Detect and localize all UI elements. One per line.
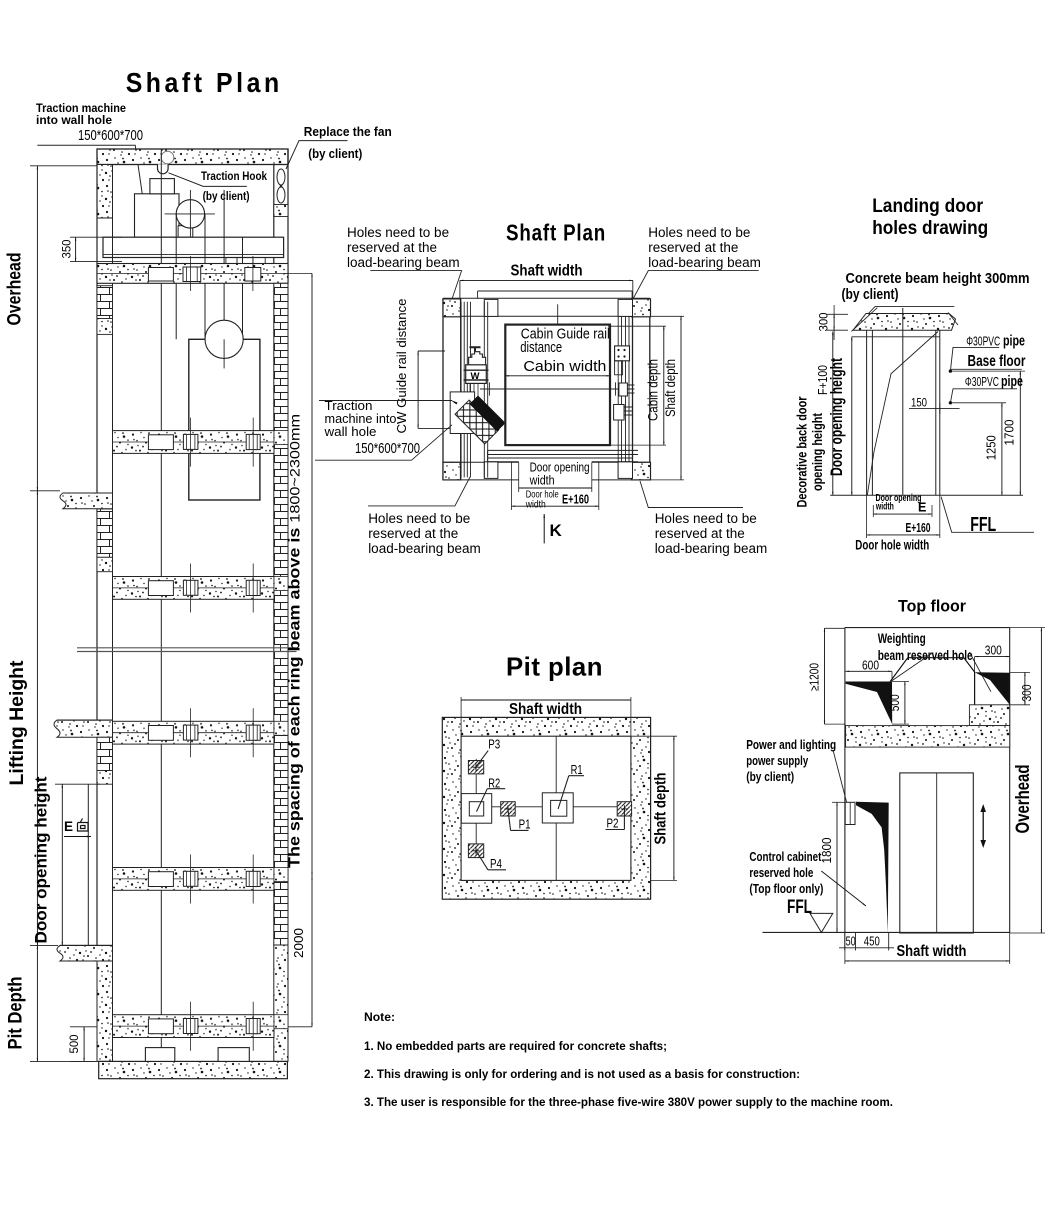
svg-text:500: 500 bbox=[888, 694, 902, 711]
svg-text:Holes need to be: Holes need to be bbox=[655, 511, 757, 526]
svg-text:Lifting Height: Lifting Height bbox=[7, 660, 28, 786]
svg-text:reserved hole: reserved hole bbox=[749, 865, 813, 880]
svg-text:Pit Depth: Pit Depth bbox=[6, 977, 27, 1050]
svg-text:Note:: Note: bbox=[364, 1010, 395, 1024]
svg-text:Base floor: Base floor bbox=[968, 353, 1026, 370]
svg-text:Φ30PVC: Φ30PVC bbox=[966, 334, 1000, 349]
svg-text:P1: P1 bbox=[519, 817, 531, 832]
svg-text:Holes need to be: Holes need to be bbox=[648, 225, 750, 240]
svg-text:The spacing of each ring beam: The spacing of each ring beam above is 1… bbox=[287, 414, 304, 868]
svg-text:1700: 1700 bbox=[1003, 419, 1017, 445]
svg-text:3. The user is responsible for: 3. The user is responsible for the three… bbox=[364, 1095, 893, 1109]
svg-text:500: 500 bbox=[67, 1034, 81, 1053]
svg-text:Shaft width: Shaft width bbox=[509, 701, 582, 718]
svg-text:Cabin width: Cabin width bbox=[523, 358, 606, 375]
svg-text:1800: 1800 bbox=[820, 837, 834, 863]
svg-text:pipe: pipe bbox=[1003, 334, 1025, 350]
svg-text:width: width bbox=[525, 499, 546, 511]
svg-text:(Top floor only): (Top floor only) bbox=[749, 881, 823, 896]
svg-text:Shaft Plan: Shaft Plan bbox=[506, 220, 606, 246]
svg-text:(by client): (by client) bbox=[308, 146, 362, 161]
svg-text:300: 300 bbox=[1020, 684, 1034, 701]
svg-text:K: K bbox=[550, 521, 563, 540]
svg-text:(by client): (by client) bbox=[842, 287, 899, 303]
svg-text:Shaft Plan: Shaft Plan bbox=[126, 67, 283, 98]
svg-text:reserved at the: reserved at the bbox=[347, 240, 437, 255]
svg-text:Door opening: Door opening bbox=[530, 461, 590, 475]
svg-text:Weighting: Weighting bbox=[878, 630, 926, 646]
svg-text:Landing door: Landing door bbox=[872, 195, 983, 217]
svg-text:wall hole: wall hole bbox=[323, 424, 376, 439]
svg-text:opening height: opening height bbox=[810, 413, 825, 491]
svg-text:50: 50 bbox=[846, 934, 856, 948]
svg-text:1. No embedded parts are requi: 1. No embedded parts are required for co… bbox=[364, 1039, 667, 1053]
svg-text:(by client): (by client) bbox=[203, 191, 250, 203]
svg-text:Shaft depth: Shaft depth bbox=[663, 359, 678, 417]
svg-text:reserved at the: reserved at the bbox=[368, 526, 458, 541]
svg-text:W: W bbox=[471, 371, 480, 382]
svg-text:distance: distance bbox=[520, 340, 562, 356]
svg-text:reserved at the: reserved at the bbox=[648, 240, 738, 255]
svg-text:E: E bbox=[64, 819, 73, 834]
svg-text:300: 300 bbox=[817, 312, 831, 331]
svg-text:(by client): (by client) bbox=[746, 769, 794, 784]
svg-text:600: 600 bbox=[862, 659, 879, 673]
svg-text:Decorative back door: Decorative back door bbox=[795, 396, 810, 508]
svg-text:150: 150 bbox=[911, 396, 927, 410]
svg-text:Shaft depth: Shaft depth bbox=[653, 773, 670, 845]
svg-text:Φ30PVC: Φ30PVC bbox=[965, 374, 999, 389]
svg-text:2000: 2000 bbox=[291, 928, 306, 958]
svg-text:Holes need to be: Holes need to be bbox=[368, 511, 470, 526]
svg-text:Shaft width: Shaft width bbox=[897, 943, 967, 960]
svg-text:R1: R1 bbox=[571, 762, 583, 777]
svg-text:holes drawing: holes drawing bbox=[872, 217, 988, 239]
svg-text:150*600*700: 150*600*700 bbox=[355, 440, 420, 457]
svg-text:load-bearing beam: load-bearing beam bbox=[368, 541, 481, 556]
svg-text:Overhead: Overhead bbox=[5, 253, 26, 326]
svg-text:Cabin depth: Cabin depth bbox=[646, 359, 661, 421]
svg-text:FFL: FFL bbox=[787, 897, 812, 918]
svg-text:300: 300 bbox=[985, 644, 1002, 658]
svg-text:power supply: power supply bbox=[746, 753, 809, 768]
svg-text:load-bearing beam: load-bearing beam bbox=[655, 541, 768, 556]
svg-text:Holes need to be: Holes need to be bbox=[347, 225, 449, 240]
svg-text:width: width bbox=[875, 501, 894, 513]
svg-text:E: E bbox=[918, 501, 926, 515]
svg-text:Door opening height: Door opening height bbox=[827, 358, 846, 476]
svg-text:450: 450 bbox=[864, 934, 880, 948]
svg-text:≥1200: ≥1200 bbox=[808, 663, 822, 691]
svg-text:Replace the fan: Replace the fan bbox=[304, 124, 392, 139]
svg-text:Power and lighting: Power and lighting bbox=[746, 737, 836, 752]
svg-text:P3: P3 bbox=[488, 737, 500, 752]
svg-text:load-bearing beam: load-bearing beam bbox=[347, 255, 460, 270]
svg-text:2. This drawing is only for or: 2. This drawing is only for ordering and… bbox=[364, 1067, 800, 1081]
svg-text:1250: 1250 bbox=[985, 435, 999, 460]
svg-text:Top floor: Top floor bbox=[898, 597, 966, 616]
svg-text:Traction Hook: Traction Hook bbox=[201, 171, 268, 183]
svg-text:Overhead: Overhead bbox=[1013, 765, 1034, 834]
svg-text:Concrete beam height 300mm: Concrete beam height 300mm bbox=[846, 271, 1030, 287]
svg-text:width: width bbox=[529, 474, 555, 488]
svg-text:reserved at the: reserved at the bbox=[655, 526, 745, 541]
svg-text:Shaft width: Shaft width bbox=[511, 263, 583, 280]
svg-text:350: 350 bbox=[60, 239, 74, 258]
svg-text:load-bearing beam: load-bearing beam bbox=[648, 255, 761, 270]
svg-text:P2: P2 bbox=[607, 816, 619, 831]
svg-text:P4: P4 bbox=[490, 856, 502, 871]
svg-text:Pit plan: Pit plan bbox=[506, 652, 603, 682]
svg-text:beam reserved hole: beam reserved hole bbox=[878, 647, 973, 663]
svg-text:Control cabinet: Control cabinet bbox=[749, 849, 822, 864]
svg-text:E+160: E+160 bbox=[906, 520, 931, 535]
svg-text:E+160: E+160 bbox=[562, 492, 589, 507]
svg-text:pipe: pipe bbox=[1001, 374, 1023, 390]
svg-text:Door opening height: Door opening height bbox=[32, 776, 51, 943]
svg-text:Door hole width: Door hole width bbox=[855, 538, 929, 553]
svg-text:into wall hole: into wall hole bbox=[36, 113, 112, 127]
svg-text:150*600*700: 150*600*700 bbox=[78, 127, 143, 144]
